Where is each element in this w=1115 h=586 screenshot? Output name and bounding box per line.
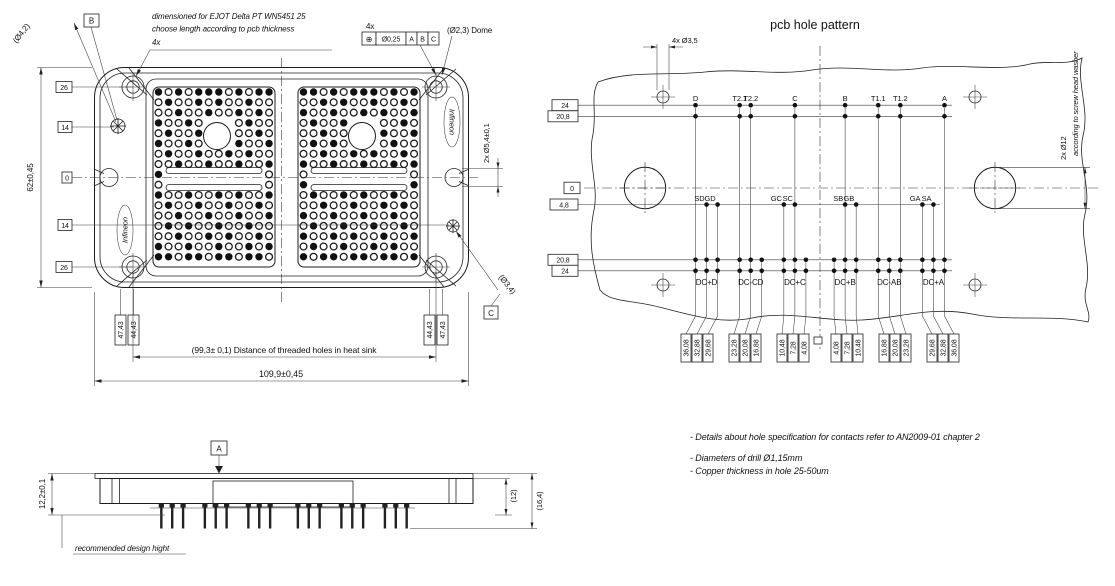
hole	[266, 171, 273, 178]
hole	[225, 89, 232, 96]
pcb-corner-holes	[651, 85, 987, 297]
hole	[266, 253, 273, 260]
pcb-hole	[920, 269, 925, 274]
hole	[300, 120, 307, 127]
hole	[195, 223, 202, 230]
pin	[155, 119, 162, 126]
hole	[195, 192, 202, 199]
hole	[300, 202, 307, 209]
pin	[195, 150, 202, 157]
pin	[390, 191, 397, 198]
hole	[195, 140, 202, 147]
hole	[236, 150, 243, 157]
hole	[360, 99, 367, 106]
fcf-tolerance: Ø0,25	[382, 37, 401, 44]
hole	[340, 130, 347, 137]
hole	[330, 202, 337, 209]
pin	[384, 507, 386, 529]
hole	[401, 130, 408, 137]
hole	[340, 233, 347, 240]
pin	[350, 233, 357, 240]
pin	[215, 253, 222, 260]
pcb-hole	[854, 257, 859, 262]
pcb-hole	[759, 257, 764, 262]
hole	[411, 140, 418, 147]
screw-hole-dia-note: (Ø4,2)	[11, 22, 32, 45]
pin	[310, 119, 317, 126]
pin-shoulder	[246, 504, 251, 508]
hole	[246, 130, 253, 137]
hole	[350, 192, 357, 199]
pin	[390, 88, 397, 95]
pin-shoulder	[339, 504, 344, 508]
y-dim: 24	[561, 269, 569, 276]
y-dim: 24	[561, 103, 569, 110]
pcb-hole	[876, 257, 881, 262]
pin	[171, 507, 173, 529]
pin	[215, 243, 222, 250]
pin	[310, 191, 317, 198]
note-line: - Copper thickness in hole 25-50um	[690, 466, 829, 476]
pin	[235, 212, 242, 219]
hole	[246, 140, 253, 147]
pin-shoulder	[295, 504, 300, 508]
pin	[235, 191, 242, 198]
pcb-hole	[737, 269, 742, 274]
pin	[175, 88, 182, 95]
hole	[360, 233, 367, 240]
hole	[155, 223, 162, 230]
pin	[255, 130, 262, 137]
hole	[185, 150, 192, 157]
hole	[340, 202, 347, 209]
hole	[320, 109, 327, 116]
terminal-label: T1.1	[871, 94, 886, 103]
pin-hole-grid	[155, 88, 418, 260]
pcb-hole	[898, 257, 903, 262]
hole	[330, 243, 337, 250]
gate-pin-label: GD	[705, 194, 717, 203]
pcb-hole	[715, 257, 720, 262]
pcb-hole	[942, 257, 947, 262]
dc-terminal-label: DC-CD	[738, 278, 764, 287]
hole	[155, 181, 162, 188]
terminal-label: T1.2	[893, 94, 908, 103]
gate-pin-label: SC	[783, 194, 794, 203]
hole	[266, 202, 273, 209]
pin	[205, 233, 212, 240]
pin	[300, 160, 307, 167]
height-dimension: 62±0,45	[26, 163, 35, 192]
pin	[165, 222, 172, 229]
pin	[215, 507, 217, 529]
hole	[175, 120, 182, 127]
pin	[225, 150, 232, 157]
hole	[215, 202, 222, 209]
pin	[185, 243, 192, 250]
pin	[395, 507, 397, 529]
pin	[205, 88, 212, 95]
row-dim-value: 0	[65, 175, 69, 182]
pin	[175, 212, 182, 219]
hole	[411, 150, 418, 157]
pcb-hole	[693, 269, 698, 274]
row-dim-value: 26	[60, 265, 68, 272]
hole	[300, 99, 307, 106]
hole	[215, 150, 222, 157]
hole	[155, 150, 162, 157]
pcb-hole	[843, 257, 848, 262]
pin-shoulder	[213, 504, 218, 508]
hole	[381, 120, 388, 127]
pin	[318, 507, 320, 529]
datum-c-label: C	[488, 309, 494, 318]
pin-shoulder	[170, 504, 175, 508]
pin	[182, 507, 184, 529]
hole	[205, 223, 212, 230]
pcb-hole	[942, 103, 947, 108]
pcb-hole	[876, 269, 881, 274]
x-dim-value: 20,08	[893, 339, 900, 356]
hole	[266, 130, 273, 137]
pcb-hole	[793, 103, 798, 108]
pin	[362, 507, 364, 529]
hole	[330, 150, 337, 157]
hole	[391, 109, 398, 116]
hole	[165, 192, 172, 199]
gate-pin-label: GA	[910, 194, 921, 203]
notch-dimension: 2x Ø5,4±0,1	[482, 123, 491, 163]
pin	[370, 150, 377, 157]
pin	[235, 140, 242, 147]
hole	[340, 89, 347, 96]
pin	[310, 243, 317, 250]
hole	[310, 212, 317, 219]
hole	[330, 192, 337, 199]
hole	[300, 243, 307, 250]
pin	[370, 99, 377, 106]
hole	[215, 161, 222, 168]
pin	[330, 140, 337, 147]
pin	[410, 130, 417, 137]
hole	[381, 99, 388, 106]
hole	[185, 99, 192, 106]
pin	[165, 130, 172, 137]
pin-shoulder	[306, 504, 311, 508]
hole	[165, 89, 172, 96]
cad-drawing-sheet: Infineon Infineon 62±0,45 B (Ø4,2) dimen…	[0, 0, 1115, 586]
hole	[310, 233, 317, 240]
module-inner-wall	[100, 73, 463, 282]
hole	[340, 253, 347, 260]
hole	[236, 130, 243, 137]
pcb-hole	[793, 257, 798, 262]
pin	[380, 130, 387, 137]
hole	[256, 99, 263, 106]
overall-width-dimension: 109,9±0,45	[259, 369, 303, 379]
hole	[155, 130, 162, 137]
hole	[236, 99, 243, 106]
x-dim-value: 23,28	[732, 339, 739, 356]
hole	[401, 140, 408, 147]
dc-terminal-label: DC-AB	[877, 278, 901, 287]
pin	[340, 222, 347, 229]
hole	[300, 140, 307, 147]
row-dim-value: 14	[61, 223, 69, 230]
hole	[205, 202, 212, 209]
pin	[195, 99, 202, 106]
pcb-hole	[942, 269, 947, 274]
hole	[381, 161, 388, 168]
pcb-hole	[843, 103, 848, 108]
pin	[310, 222, 317, 229]
hole	[225, 109, 232, 116]
hole	[411, 171, 418, 178]
pcb-hole	[715, 269, 720, 274]
pcb-hole	[898, 103, 903, 108]
hole	[246, 161, 253, 168]
pcb-hole	[693, 103, 698, 108]
pin	[390, 140, 397, 147]
pin	[225, 202, 232, 209]
pin	[255, 233, 262, 240]
pin	[410, 181, 417, 188]
hole	[381, 150, 388, 157]
hole	[256, 223, 263, 230]
fcf-quantity: 4x	[366, 22, 374, 31]
x-dim-value: 4,08	[802, 341, 809, 354]
pin	[225, 253, 232, 260]
pcb-hole	[748, 257, 753, 262]
pcb-hole	[804, 269, 809, 274]
pin	[410, 233, 417, 240]
infineon-logo-left: Infineon	[117, 205, 133, 255]
pcb-hole	[793, 202, 798, 207]
pin	[225, 233, 232, 240]
hole	[360, 202, 367, 209]
heatsink-hole-distance: (99,3± 0,1) Distance of threaded holes i…	[192, 345, 378, 355]
corner-hole-dimension: 4x Ø3,5	[672, 36, 698, 45]
pin	[320, 150, 327, 157]
hole	[195, 243, 202, 250]
hole	[185, 89, 192, 96]
pin-shoulder	[180, 504, 185, 508]
pin	[350, 150, 357, 157]
pcb-hole	[931, 257, 936, 262]
hole	[391, 130, 398, 137]
pin	[340, 99, 347, 106]
hole	[330, 99, 337, 106]
hole	[350, 243, 357, 250]
hole	[185, 202, 192, 209]
x-dim-value: 16,88	[754, 339, 761, 356]
x-dim-value: 7,28	[845, 341, 852, 354]
x-dim-value: 36,08	[684, 339, 691, 356]
hole	[266, 181, 273, 188]
hole	[175, 140, 182, 147]
hole	[256, 150, 263, 157]
view-title: pcb hole pattern	[770, 18, 860, 32]
hole	[175, 202, 182, 209]
dc-terminal-label: DC+C	[784, 278, 806, 287]
pin	[340, 507, 342, 529]
hole	[225, 243, 232, 250]
terminal-label: C	[792, 94, 798, 103]
hole	[310, 161, 317, 168]
hole	[195, 212, 202, 219]
hole	[340, 212, 347, 219]
hole	[225, 99, 232, 106]
pin	[410, 253, 417, 260]
pcb-hole	[759, 269, 764, 274]
pin	[390, 253, 397, 260]
pcb-hole	[931, 202, 936, 207]
pin	[245, 243, 252, 250]
hole	[205, 253, 212, 260]
hole	[411, 99, 418, 106]
pcb-hole	[843, 269, 848, 274]
gate-pin-label: GC	[771, 194, 783, 203]
hole	[246, 212, 253, 219]
pcb-hole	[693, 257, 698, 262]
hole	[155, 202, 162, 209]
panel-opening-right	[349, 123, 376, 150]
ejot-note-line3: 4x	[152, 38, 161, 47]
pin	[370, 222, 377, 229]
hole	[340, 161, 347, 168]
logo-text: Infineon	[121, 217, 130, 243]
pin	[350, 253, 357, 260]
pin	[330, 109, 337, 116]
pin	[330, 160, 337, 167]
hole	[246, 233, 253, 240]
hole	[370, 192, 377, 199]
hole	[370, 253, 377, 260]
row-dim-value: 14	[61, 125, 69, 132]
hole	[320, 233, 327, 240]
pcb-hole	[715, 202, 720, 207]
hole	[330, 120, 337, 127]
pcb-hole	[843, 114, 848, 119]
pin	[245, 119, 252, 126]
hole	[320, 120, 327, 127]
hole	[205, 192, 212, 199]
hole	[411, 212, 418, 219]
pin-shoulder	[202, 504, 207, 508]
y-dim: 4,8	[559, 202, 569, 209]
hole	[225, 192, 232, 199]
dc-terminal-label: DC+B	[835, 278, 856, 287]
hole	[266, 99, 273, 106]
hole	[300, 130, 307, 137]
pin	[265, 243, 272, 250]
hole	[256, 243, 263, 250]
hole	[256, 120, 263, 127]
pin	[185, 140, 192, 147]
hole	[175, 99, 182, 106]
fcf-datum-b: B	[420, 37, 425, 44]
pin	[360, 212, 367, 219]
hole	[175, 130, 182, 137]
hole	[155, 212, 162, 219]
hole	[165, 161, 172, 168]
small-hole-note: (Ø3,4)	[497, 273, 518, 296]
hole	[370, 212, 377, 219]
hole	[300, 223, 307, 230]
dome-note: (Ø2,3) Dome	[447, 26, 493, 35]
hole	[246, 89, 253, 96]
hole	[391, 99, 398, 106]
pcb-hole	[748, 103, 753, 108]
row-dim-value: 26	[60, 85, 68, 92]
hole	[165, 233, 172, 240]
hole	[236, 202, 243, 209]
x-dim-value: 29,68	[930, 339, 937, 356]
pin	[255, 109, 262, 116]
pin	[185, 119, 192, 126]
hole	[215, 212, 222, 219]
pin	[155, 191, 162, 198]
pin	[310, 140, 317, 147]
pin	[350, 202, 357, 209]
pin	[320, 130, 327, 137]
hole	[155, 99, 162, 106]
pin	[160, 507, 162, 529]
baseplate-flange	[95, 474, 473, 479]
pin	[215, 88, 222, 95]
hole	[310, 253, 317, 260]
hole	[381, 243, 388, 250]
pin	[300, 88, 307, 95]
hole	[391, 150, 398, 157]
hole	[411, 192, 418, 199]
pin-dim-value: 47,43	[440, 321, 447, 338]
x-dim-value: 36,08	[952, 339, 959, 356]
y-zero: 0	[570, 186, 574, 193]
pcb-hole	[898, 269, 903, 274]
pcb-hole	[793, 114, 798, 119]
pin	[265, 212, 272, 219]
pin	[380, 202, 387, 209]
pin	[350, 88, 357, 95]
hole	[391, 120, 398, 127]
pin	[195, 202, 202, 209]
hole	[165, 109, 172, 116]
hole	[320, 192, 327, 199]
pin	[258, 507, 260, 529]
hole	[155, 161, 162, 168]
x-dim-value: 32,88	[695, 339, 702, 356]
pin	[380, 233, 387, 240]
hole	[360, 150, 367, 157]
pin	[410, 160, 417, 167]
hole	[266, 120, 273, 127]
screw-clearance-dimension: 2x Ø12	[1059, 136, 1068, 160]
terminal-label: D	[693, 94, 699, 103]
hole	[236, 233, 243, 240]
pin	[185, 222, 192, 229]
hole	[401, 192, 408, 199]
pin	[400, 202, 407, 209]
pin-dim-value: 47,43	[118, 321, 125, 338]
hole	[215, 109, 222, 116]
hole	[411, 202, 418, 209]
hole	[381, 223, 388, 230]
hole	[256, 212, 263, 219]
position-symbol-icon: ⊕	[366, 35, 373, 44]
hole	[360, 243, 367, 250]
hole	[401, 89, 408, 96]
